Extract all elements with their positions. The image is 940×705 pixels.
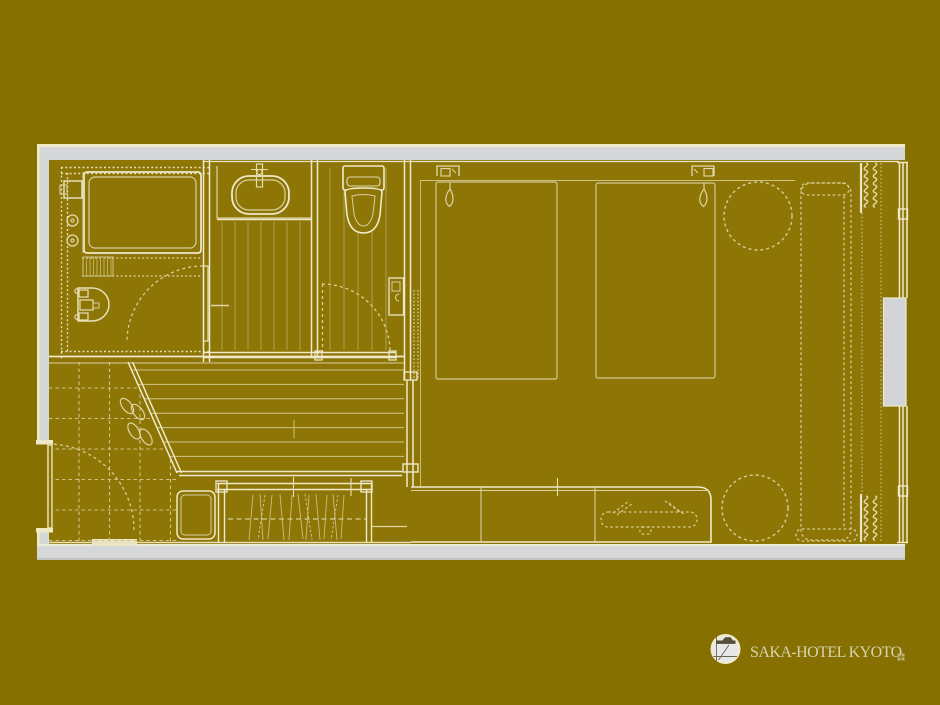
svg-text:SAKA-HOTEL KYOTO: SAKA-HOTEL KYOTO (750, 644, 902, 661)
